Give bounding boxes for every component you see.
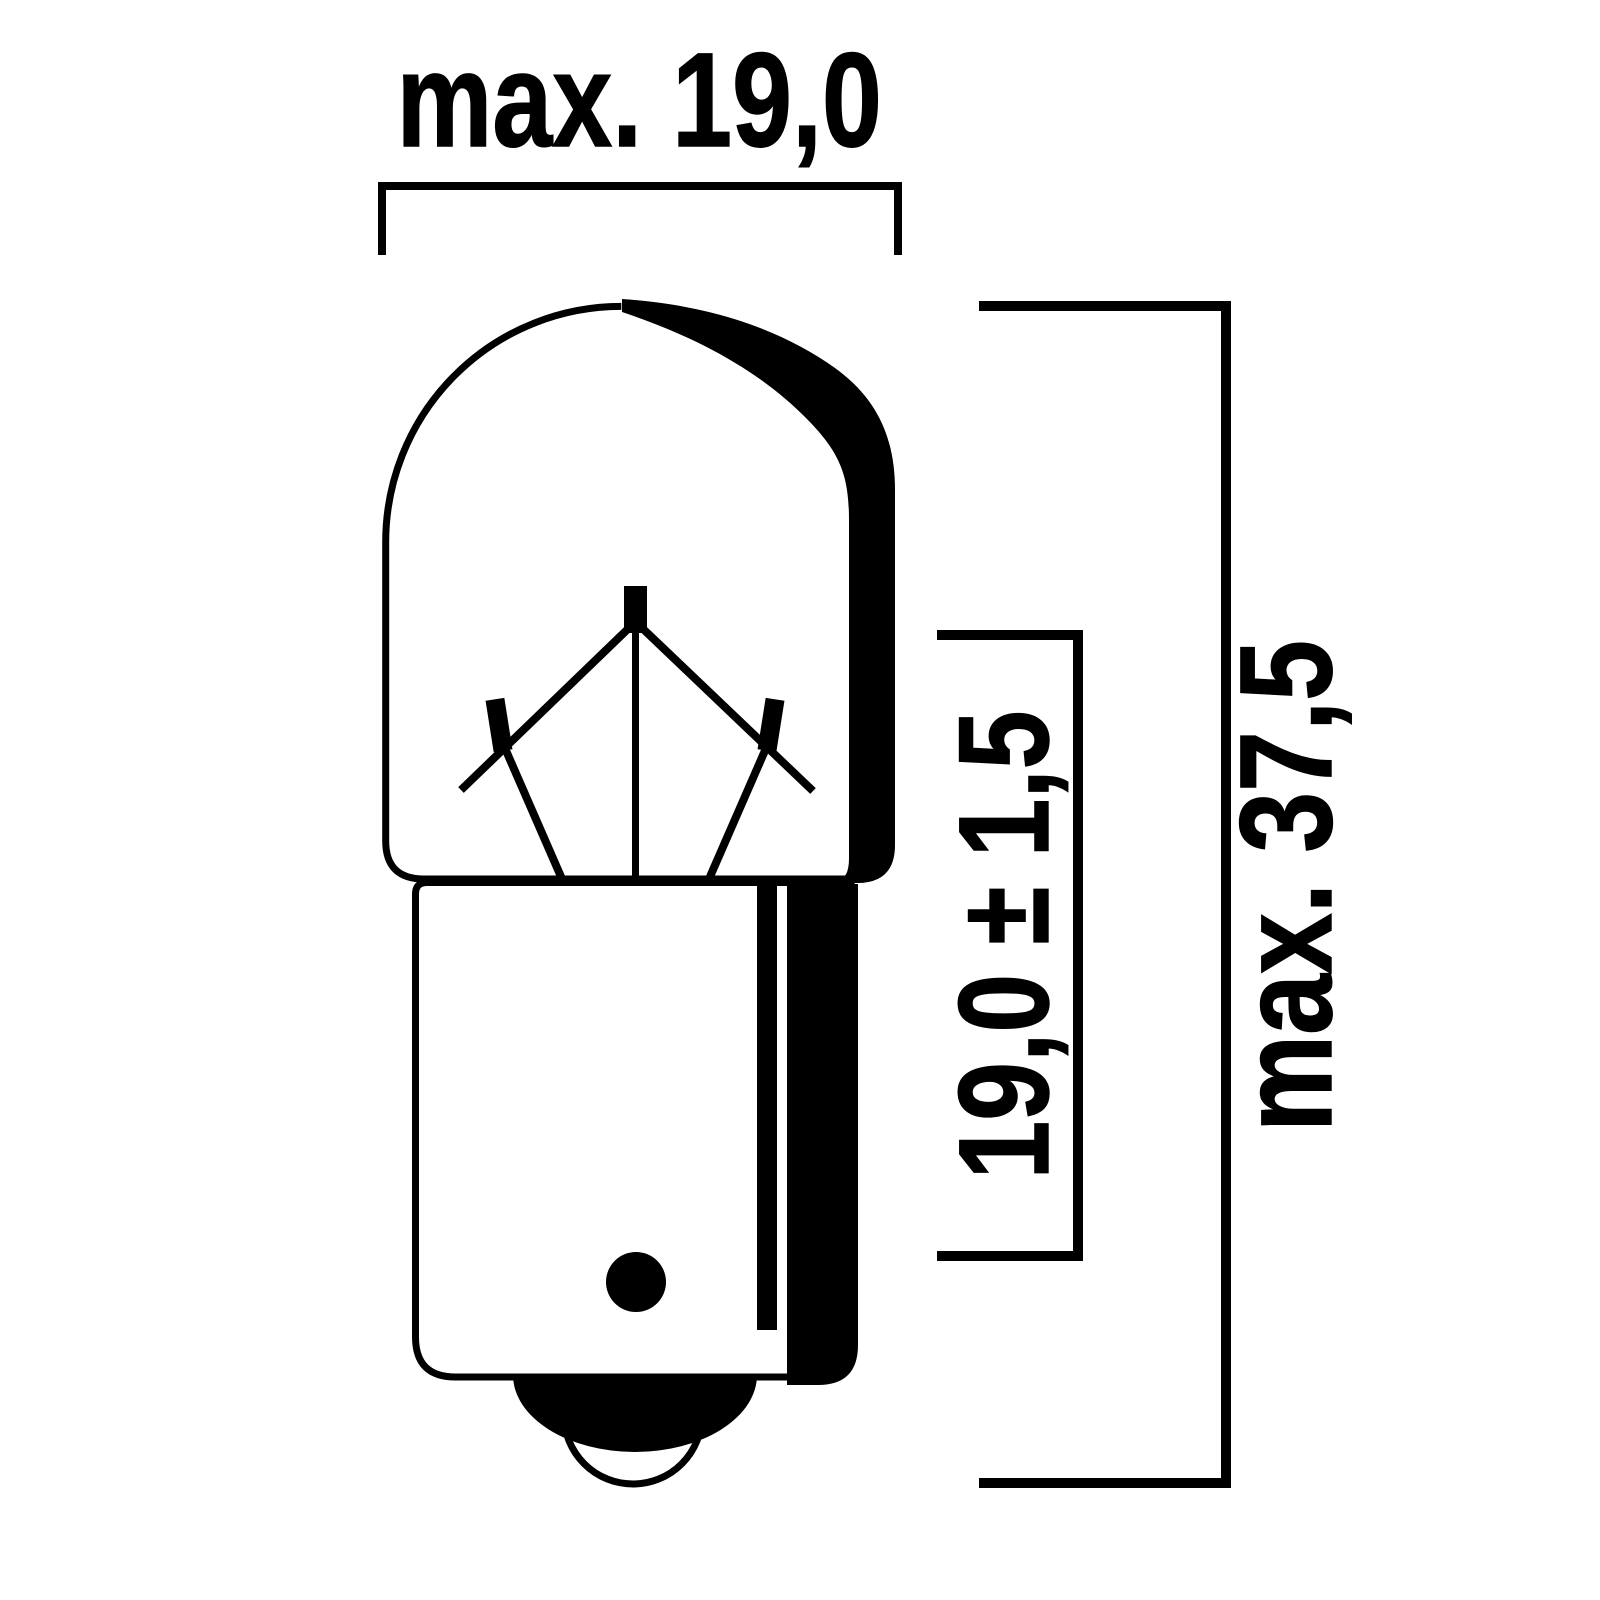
svg-text:max. 19,0: max. 19,0	[397, 25, 882, 175]
svg-text:19,0 ± 1,5: 19,0 ± 1,5	[932, 711, 1075, 1180]
svg-text:max. 37,5: max. 37,5	[1213, 640, 1360, 1132]
